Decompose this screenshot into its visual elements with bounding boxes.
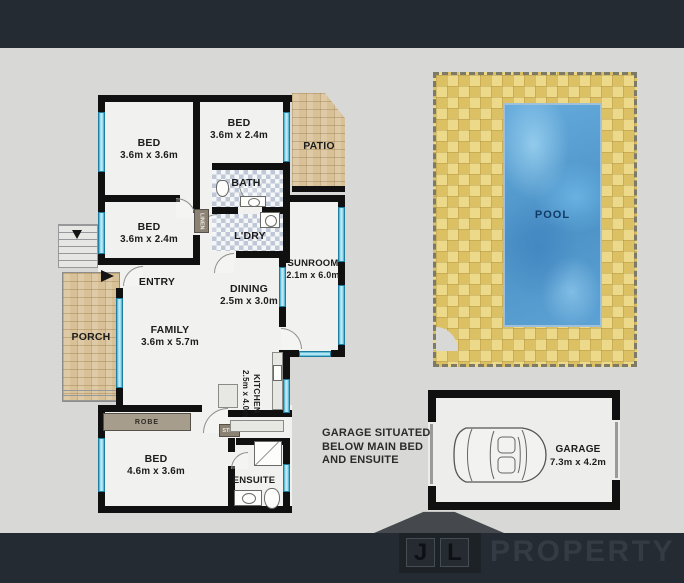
room-label-family: FAMILY 3.6m x 5.7m (126, 324, 214, 349)
room-name: POOL (535, 209, 570, 221)
kitchen-pantry (218, 384, 238, 408)
room-name: PORCH (67, 331, 115, 344)
wall (428, 390, 436, 422)
wall (292, 186, 345, 192)
logo-house-roof-icon (374, 509, 504, 533)
window (283, 464, 290, 492)
wall (98, 195, 180, 202)
wall (98, 506, 292, 513)
logo-jl-box: J L (399, 533, 481, 573)
porch-steps (63, 390, 119, 402)
garage-side-window (615, 422, 618, 478)
room-label-patio: PATIO (297, 140, 341, 153)
window (116, 298, 123, 388)
room-name: ENTRY (134, 276, 180, 289)
room-label-bed4: BED 4.6m x 3.6m (110, 453, 202, 478)
wall (279, 307, 286, 327)
window (98, 212, 105, 254)
garage-note: GARAGE SITUATED BELOW MAIN BED AND ENSUI… (322, 427, 434, 468)
room-name: PATIO (297, 140, 341, 153)
room-label-garage: GARAGE 7.3m x 4.2m (542, 444, 614, 469)
room-label-bed1: BED 3.6m x 3.6m (105, 137, 193, 162)
room-name: L'DRY (222, 230, 278, 243)
room-label-bath: BATH (220, 177, 272, 190)
room-dims: 3.6m x 2.4m (105, 234, 193, 247)
room-label-bed2: BED 3.6m x 2.4m (197, 117, 281, 142)
room-name: BATH (220, 177, 272, 190)
ensuite-basin-icon (242, 493, 256, 504)
room-label-entry: ENTRY (134, 276, 180, 289)
wall (285, 195, 345, 202)
window (283, 112, 290, 162)
kitchen-sink-icon (273, 365, 282, 381)
note-line: BELOW MAIN BED (322, 441, 434, 455)
wall (285, 350, 299, 357)
room-name: DINING (212, 283, 286, 296)
room-label-laundry: L'DRY (222, 230, 278, 243)
stairs-direction-arrow-icon (72, 230, 82, 239)
wall (236, 251, 290, 258)
linen-label: LINEN (199, 213, 205, 230)
wall (331, 350, 345, 357)
room-dims: 3.6m x 5.7m (126, 337, 214, 350)
logo-letter-j: J (406, 538, 435, 567)
room-dims: 2.1m x 6.0m (281, 270, 345, 282)
floorplan-image: ROBE LINEN STEP BED 3.6m x 3.6m BED 3.6m… (0, 0, 684, 583)
wall (212, 207, 238, 214)
room-name: KITCHEN (251, 352, 262, 436)
window (338, 285, 345, 345)
wall (98, 405, 202, 412)
robe-closet: ROBE (103, 413, 191, 431)
room-label-kitchen: KITCHEN 2.5m x 4.0m (238, 352, 262, 436)
logo-letter-l: L (440, 538, 469, 567)
laundry-washer-drum (265, 215, 277, 227)
room-dims: 2.5m x 3.0m (212, 296, 286, 309)
window (338, 207, 345, 262)
room-name: SUNROOM (281, 258, 345, 270)
wall (193, 235, 200, 265)
room-name: ENSUITE (224, 475, 284, 488)
wall (428, 502, 620, 510)
wall (612, 390, 620, 420)
wall (98, 258, 195, 265)
room-dims: 7.3m x 4.2m (542, 457, 614, 470)
note-line: GARAGE SITUATED (322, 427, 434, 441)
wall (193, 163, 200, 213)
ensuite-toilet-icon (264, 488, 280, 509)
room-label-bed3: BED 3.6m x 2.4m (105, 221, 193, 246)
room-label-dining: DINING 2.5m x 3.0m (212, 283, 286, 308)
note-line: AND ENSUITE (322, 454, 434, 468)
room-dims: 3.6m x 2.4m (197, 130, 281, 143)
top-letterbox-bar (0, 0, 684, 48)
pool-label: POOL (503, 209, 602, 221)
robe-label: ROBE (135, 419, 159, 426)
room-label-porch: PORCH (67, 331, 115, 344)
room-label-sunroom: SUNROOM 2.1m x 6.0m (281, 258, 345, 281)
wall (212, 163, 283, 170)
logo-wordmark: PROPERTY (490, 534, 675, 570)
window (98, 438, 105, 492)
entry-direction-arrow-icon (101, 270, 114, 282)
window (299, 351, 331, 357)
window (283, 379, 290, 413)
room-name: FAMILY (126, 324, 214, 337)
ensuite-shower (254, 441, 282, 466)
window (98, 112, 105, 172)
room-name: BED (105, 221, 193, 234)
room-dims: 4.6m x 3.6m (110, 466, 202, 479)
wall (428, 390, 620, 398)
room-dims: 2.5m x 4.0m (240, 352, 251, 436)
room-label-ensuite: ENSUITE (224, 475, 284, 488)
linen-closet: LINEN (194, 209, 209, 233)
room-name: GARAGE (542, 444, 614, 457)
wall (428, 486, 436, 510)
kitchen-counter (272, 352, 283, 410)
wall (228, 438, 235, 452)
room-name: BED (197, 117, 281, 130)
room-name: BED (110, 453, 202, 466)
wall (612, 480, 620, 510)
room-name: BED (105, 137, 193, 150)
room-dims: 3.6m x 3.6m (105, 150, 193, 163)
car-top-view-icon (452, 424, 548, 486)
bath-basin-icon (248, 198, 260, 207)
